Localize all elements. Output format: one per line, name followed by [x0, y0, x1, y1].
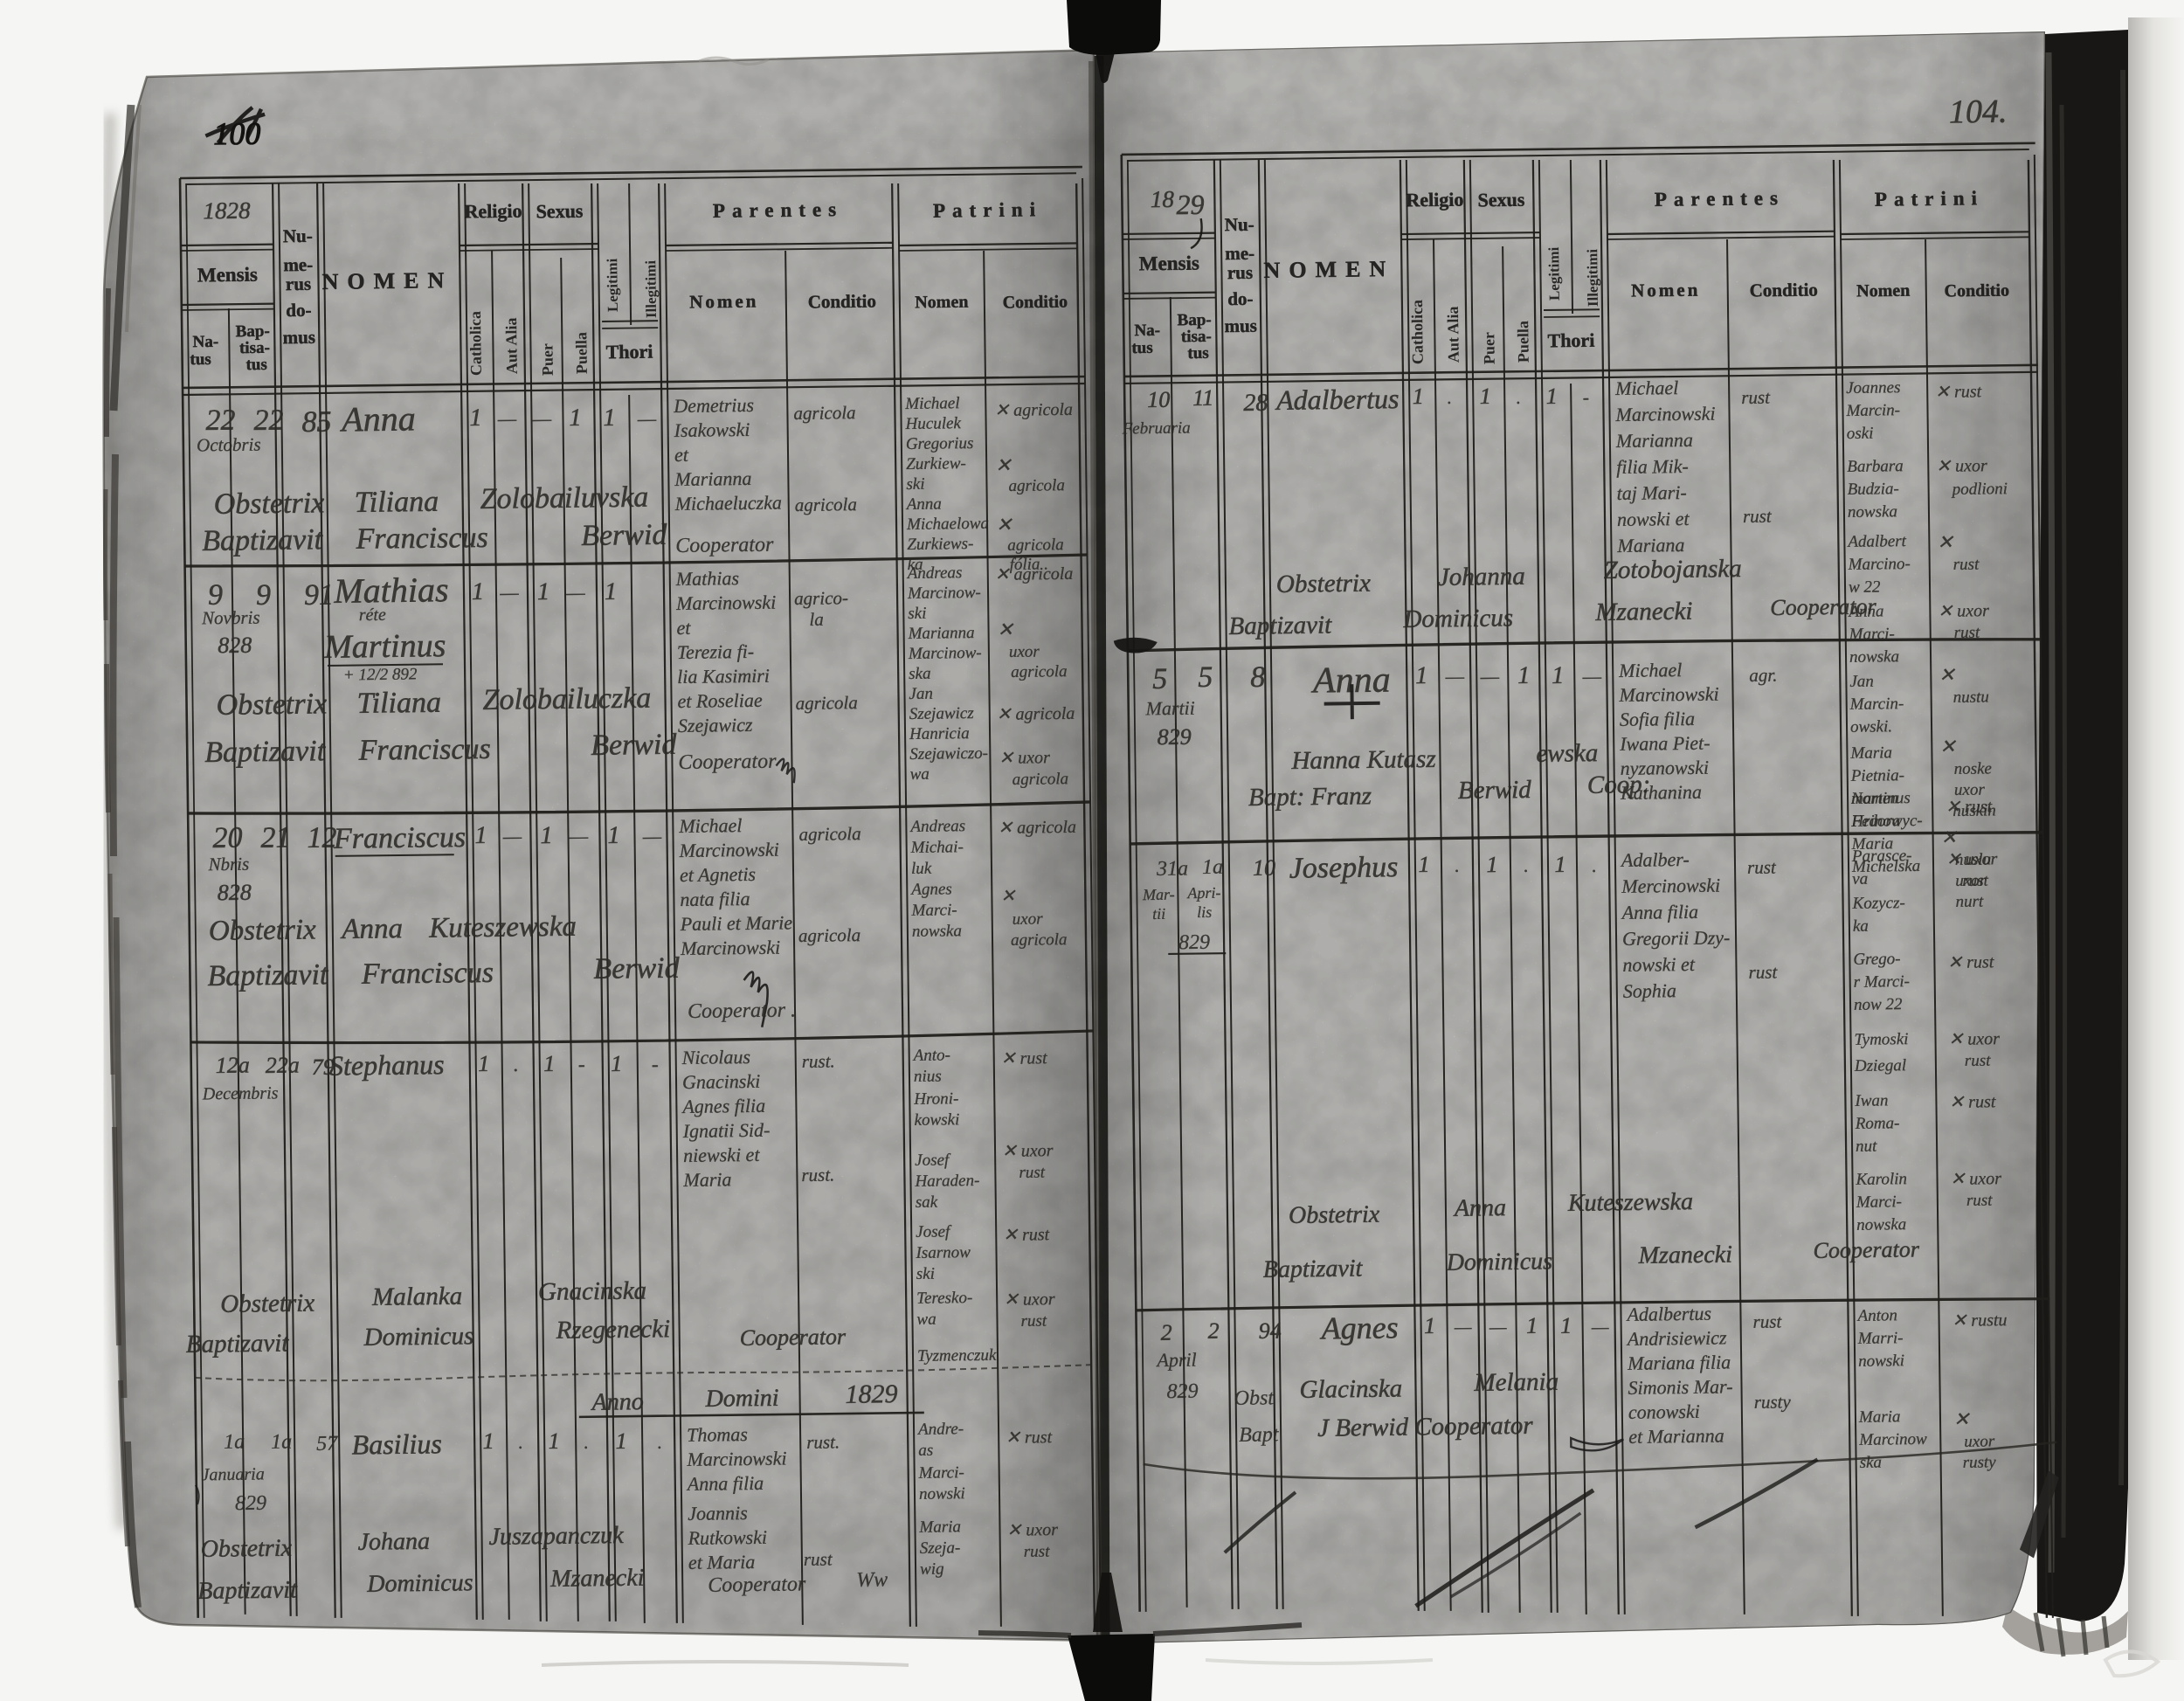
svg-text:22: 22: [253, 405, 283, 437]
svg-text:rust: rust: [1962, 872, 1989, 890]
svg-text:Obstetrix Tiliana: Obstetrix Tiliana: [216, 687, 441, 722]
svg-text:Obst: Obst: [1234, 1386, 1275, 1410]
svg-text:Sexus: Sexus: [536, 200, 584, 223]
svg-text:1: 1: [569, 405, 581, 432]
svg-text:—: —: [569, 826, 589, 848]
svg-text:—: —: [565, 582, 585, 605]
svg-text:Zurkiews-: Zurkiews-: [907, 535, 973, 554]
svg-text:uxor: uxor: [1013, 909, 1044, 928]
svg-text:1: 1: [543, 1051, 555, 1076]
svg-text:mus: mus: [1224, 315, 1257, 336]
svg-text:Martinus: Martinus: [323, 627, 446, 666]
svg-text:Basilius: Basilius: [351, 1428, 442, 1460]
svg-text:rust: rust: [1743, 506, 1773, 527]
svg-text:18: 18: [1151, 186, 1175, 212]
svg-text:Baptizavit Franciscus: Baptizavit Franciscus: [207, 957, 494, 992]
svg-text:Catholica: Catholica: [467, 311, 485, 376]
svg-text:✕: ✕: [996, 514, 1013, 536]
svg-text:tus: tus: [1131, 339, 1153, 357]
svg-text:April: April: [1155, 1349, 1197, 1372]
svg-text:2: 2: [1161, 1320, 1172, 1345]
svg-text:ska: ska: [1859, 1454, 1882, 1472]
svg-text:Berwid: Berwid: [591, 729, 678, 762]
svg-text:Marianna: Marianna: [674, 467, 751, 490]
svg-text:rus: rus: [286, 273, 311, 294]
svg-text:829: 829: [1166, 1380, 1198, 1403]
svg-text:Baptizavit Franciscus: Baptizavit Franciscus: [202, 522, 488, 557]
svg-text:1: 1: [1486, 852, 1497, 877]
svg-text:.: .: [514, 1054, 519, 1076]
svg-text:Andre-: Andre-: [916, 1420, 964, 1439]
svg-text:1: 1: [472, 578, 484, 605]
svg-text:21: 21: [260, 821, 290, 854]
svg-text:Berwid: Berwid: [593, 952, 681, 985]
svg-text:Bapt: Bapt: [1239, 1423, 1280, 1447]
svg-text:Gnacinski: Gnacinski: [682, 1070, 761, 1093]
svg-text:Haraden-: Haraden-: [914, 1172, 979, 1191]
svg-text:Anna: Anna: [905, 494, 942, 514]
svg-text:Zolobailuvska: Zolobailuvska: [480, 481, 648, 515]
svg-text:kowski: kowski: [914, 1110, 959, 1130]
svg-text:Cooperator: Cooperator: [740, 1324, 847, 1351]
svg-text:Hanna Kutasz: Hanna Kutasz: [1290, 745, 1436, 775]
svg-text:Michaelowa: Michaelowa: [906, 515, 989, 534]
svg-text:Thomas: Thomas: [687, 1423, 748, 1446]
svg-text:Marcinowski: Marcinowski: [1614, 403, 1715, 425]
svg-text:wa: wa: [910, 765, 930, 784]
svg-text:1: 1: [1552, 662, 1564, 689]
svg-text:Franciscus: Franciscus: [333, 821, 467, 855]
svg-text:5: 5: [1152, 663, 1167, 695]
svg-text:Baptizavit: Baptizavit: [1228, 611, 1332, 640]
svg-text:—: —: [1479, 666, 1499, 688]
svg-text:.: .: [1592, 854, 1597, 876]
svg-text:wig: wig: [920, 1560, 944, 1579]
svg-text:uxor: uxor: [1964, 1432, 1995, 1450]
svg-text:828: 828: [218, 633, 252, 658]
svg-text:94: 94: [1258, 1318, 1281, 1344]
svg-text:Adalbertus: Adalbertus: [1275, 383, 1400, 416]
svg-text:1: 1: [483, 1428, 494, 1454]
svg-text:Mensis: Mensis: [1139, 252, 1199, 275]
svg-text:Cooperator: Cooperator: [1770, 593, 1877, 620]
svg-text:12: 12: [307, 822, 336, 854]
svg-text:Tyzmenczuk: Tyzmenczuk: [917, 1346, 997, 1366]
svg-text:podlioni: podlioni: [1951, 480, 2008, 499]
svg-text:do-: do-: [286, 300, 311, 321]
svg-text:Gregorius: Gregorius: [906, 434, 974, 453]
svg-text:Coop:: Coop:: [1587, 771, 1651, 799]
svg-text:✕ agricola: ✕ agricola: [998, 818, 1076, 838]
svg-text:Zotobojanska: Zotobojanska: [1604, 555, 1742, 584]
svg-text:Marci-: Marci-: [1849, 625, 1895, 644]
svg-text:Mercinowski: Mercinowski: [1621, 875, 1720, 897]
svg-text:✕ uxor: ✕ uxor: [999, 748, 1050, 768]
svg-text:20: 20: [212, 822, 242, 854]
svg-text:Nu-: Nu-: [283, 225, 313, 246]
svg-text:✕: ✕: [1939, 664, 1955, 686]
svg-text:now 22: now 22: [1854, 995, 1903, 1014]
svg-text:-: -: [652, 1054, 659, 1076]
svg-text:✕ rust: ✕ rust: [1935, 382, 1982, 402]
svg-text:Puella: Puella: [1514, 321, 1532, 363]
svg-text:Baptizavit: Baptizavit: [186, 1329, 290, 1358]
svg-text:Bapt: Franz: Bapt: Franz: [1248, 782, 1372, 812]
svg-text:Adalbert: Adalbert: [1846, 532, 1906, 551]
svg-text:—: —: [499, 582, 519, 605]
svg-text:Ww: Ww: [856, 1568, 888, 1591]
svg-text:1: 1: [611, 1051, 622, 1076]
svg-text:22a: 22a: [266, 1052, 300, 1077]
svg-text:Legitimi: Legitimi: [1545, 246, 1563, 301]
svg-text:11: 11: [1192, 385, 1213, 411]
svg-text:rust: rust: [1965, 1052, 1992, 1070]
svg-text:rust: rust: [1752, 1310, 1782, 1331]
svg-text:Novbris: Novbris: [201, 607, 260, 629]
svg-text:noske: noske: [1954, 759, 1993, 778]
svg-text:✕ uxor: ✕ uxor: [1936, 456, 1987, 476]
svg-text:2: 2: [1207, 1318, 1219, 1344]
svg-text:NOMEN: NOMEN: [321, 267, 453, 294]
svg-text:nustu: nustu: [1952, 688, 1988, 707]
svg-text:lia Kasimiri: lia Kasimiri: [677, 665, 770, 688]
svg-text:ewska: ewska: [1536, 739, 1598, 768]
svg-text:Hroni-: Hroni-: [913, 1089, 958, 1109]
svg-text:do-: do-: [1227, 288, 1253, 309]
svg-text:Anno: Anno: [590, 1388, 643, 1416]
svg-text:Maria: Maria: [682, 1168, 731, 1191]
svg-text:me-: me-: [1225, 243, 1254, 264]
svg-text:—: —: [642, 826, 662, 848]
svg-text:✕ rust: ✕ rust: [1001, 1048, 1048, 1068]
svg-text:réte: réte: [359, 605, 386, 625]
svg-text:1: 1: [607, 822, 619, 849]
svg-text:Isarnow: Isarnow: [915, 1243, 971, 1262]
svg-text:Mariana: Mariana: [1616, 534, 1684, 557]
svg-text:me-: me-: [283, 254, 313, 275]
svg-text:Religio: Religio: [464, 200, 522, 223]
svg-text:-: -: [1582, 386, 1589, 408]
svg-text:Marcin-: Marcin-: [1845, 401, 1900, 420]
svg-text:12a: 12a: [216, 1052, 250, 1077]
svg-text:Mensis: Mensis: [197, 264, 258, 287]
svg-text:Johanna: Johanna: [1438, 563, 1525, 591]
svg-text:J Berwid Cooperator: J Berwid Cooperator: [1317, 1412, 1534, 1442]
svg-text:la: la: [809, 609, 824, 630]
svg-text:Februaria: Februaria: [1122, 418, 1191, 438]
svg-text:nut: nut: [1856, 1137, 1877, 1156]
svg-text:10: 10: [1147, 387, 1170, 412]
svg-text:Nomen: Nomen: [915, 293, 968, 313]
svg-text:Illegitimi: Illegitimi: [642, 260, 660, 319]
svg-text:Nu-: Nu-: [1225, 214, 1254, 235]
svg-text:Grego-: Grego-: [1853, 950, 1900, 969]
svg-text:rus: rus: [1227, 262, 1253, 283]
svg-text:agr.: agr.: [1749, 665, 1777, 686]
svg-text:28: 28: [1243, 390, 1268, 417]
svg-text:Huculek: Huculek: [904, 414, 961, 433]
svg-text:Jan: Jan: [1849, 673, 1874, 691]
svg-text:1a: 1a: [1202, 856, 1223, 879]
svg-text:Apri-: Apri-: [1186, 884, 1220, 902]
svg-text:nowska: nowska: [1848, 502, 1897, 522]
svg-text:rust: rust: [1954, 624, 1981, 642]
svg-text:✕ uxor: ✕ uxor: [1950, 1169, 2001, 1189]
svg-text:Marcinow: Marcinow: [1858, 1430, 1927, 1449]
svg-text:et Agnetis: et Agnetis: [680, 863, 756, 886]
svg-text:Marcinowski: Marcinowski: [1618, 683, 1718, 706]
svg-text:Joannis: Joannis: [688, 1502, 748, 1525]
svg-text:Agnes: Agnes: [1319, 1310, 1398, 1345]
svg-text:Mariana filia: Mariana filia: [1627, 1351, 1731, 1373]
svg-text:Adalber-: Adalber-: [1620, 848, 1690, 871]
svg-text:Marcino-: Marcino-: [1848, 555, 1911, 574]
svg-text:829: 829: [1178, 931, 1210, 954]
svg-text:Puer: Puer: [1480, 332, 1497, 364]
svg-text:Kuteszewska: Kuteszewska: [1567, 1188, 1693, 1217]
svg-text:nowski: nowski: [1858, 1352, 1904, 1371]
svg-text:31a: 31a: [1156, 857, 1188, 880]
svg-text:Michael: Michael: [1618, 659, 1682, 681]
svg-text:.: .: [1455, 854, 1460, 876]
svg-text:Melania: Melania: [1473, 1368, 1559, 1397]
svg-text:Josephus: Josephus: [1289, 851, 1398, 885]
svg-text:Anna: Anna: [339, 398, 416, 439]
svg-text:1: 1: [537, 578, 549, 605]
svg-text:✕ rust: ✕ rust: [1006, 1428, 1053, 1448]
svg-text:Cooperator: Cooperator: [678, 750, 777, 774]
svg-text:1828: 1828: [203, 197, 251, 225]
svg-text:Cooperator: Cooperator: [675, 534, 774, 557]
svg-text:Aut Alia: Aut Alia: [502, 317, 521, 374]
svg-text:✕: ✕: [1940, 826, 1957, 848]
svg-text:rust.: rust.: [806, 1431, 840, 1452]
svg-text:—: —: [532, 408, 552, 431]
svg-text:Na-: Na-: [192, 333, 218, 351]
svg-text:agricola: agricola: [1013, 770, 1069, 789]
svg-text:Mar-: Mar-: [1142, 886, 1175, 903]
svg-text:.: .: [1447, 386, 1452, 408]
svg-text:Marci-: Marci-: [918, 1463, 964, 1483]
svg-text:Berwid: Berwid: [581, 519, 668, 552]
svg-text:.: .: [1516, 386, 1521, 408]
svg-text:Patrini: Patrini: [933, 198, 1042, 222]
svg-text:Conditio: Conditio: [1002, 293, 1068, 313]
svg-text:Marcinow-: Marcinow-: [908, 644, 982, 663]
svg-text:Nomen: Nomen: [689, 290, 758, 312]
svg-text:Sophia: Sophia: [1623, 979, 1676, 1002]
svg-text:agricola: agricola: [1011, 662, 1068, 681]
svg-text:Parentes: Parentes: [1655, 187, 1785, 211]
svg-text:Dziegal: Dziegal: [1854, 1056, 1906, 1075]
svg-text:Conditio: Conditio: [1750, 279, 1818, 301]
svg-text:Anna filia: Anna filia: [686, 1472, 764, 1495]
svg-text:mus: mus: [282, 327, 315, 348]
svg-text:829: 829: [1157, 724, 1191, 750]
svg-text:agricola: agricola: [798, 823, 860, 845]
svg-text:1: 1: [469, 405, 481, 432]
svg-text:1a: 1a: [224, 1431, 245, 1454]
svg-text:et Marianna: et Marianna: [1628, 1425, 1724, 1448]
svg-text:Puer: Puer: [538, 343, 556, 376]
svg-text:1: 1: [540, 822, 552, 849]
svg-text:-: -: [578, 1054, 585, 1076]
svg-text:et: et: [674, 444, 689, 466]
svg-text:91: 91: [304, 579, 334, 612]
svg-text:ka: ka: [1853, 917, 1869, 936]
svg-text:Rutkowski: Rutkowski: [687, 1526, 767, 1549]
svg-text:Maria: Maria: [918, 1518, 961, 1537]
svg-text:as: as: [918, 1442, 933, 1460]
svg-text:828: 828: [218, 880, 252, 905]
svg-text:Andrisiewicz: Andrisiewicz: [1626, 1326, 1727, 1349]
svg-text:Szejawiczo-: Szejawiczo-: [909, 744, 988, 764]
svg-text:Obstetrix: Obstetrix: [1289, 1201, 1380, 1229]
svg-text:—: —: [1489, 1316, 1507, 1338]
svg-text:Joannes: Joannes: [1846, 378, 1901, 398]
svg-text:luk: luk: [911, 860, 932, 878]
svg-text:nowska: nowska: [1856, 1215, 1906, 1234]
svg-text:✕: ✕: [1937, 531, 1953, 553]
svg-text:Nicolaus: Nicolaus: [681, 1046, 751, 1068]
svg-text:agricola: agricola: [798, 924, 860, 946]
svg-text:✕: ✕: [995, 454, 1012, 476]
svg-text:Januaria: Januaria: [201, 1464, 264, 1484]
svg-text:Conditio: Conditio: [1944, 280, 2009, 301]
svg-text:Patrini: Patrini: [1875, 187, 1984, 211]
svg-text:rust: rust: [1748, 961, 1778, 982]
svg-text:rusty: rusty: [1754, 1391, 1792, 1413]
svg-text:Terezia fi-: Terezia fi-: [677, 640, 755, 663]
svg-text:Andreas: Andreas: [906, 564, 963, 583]
svg-text:Iwan: Iwan: [1854, 1091, 1888, 1110]
svg-text:1: 1: [478, 1051, 489, 1076]
svg-text:—: —: [502, 826, 522, 848]
svg-text:✕: ✕: [1939, 736, 1956, 757]
svg-text:57: 57: [316, 1433, 338, 1456]
svg-text:Baptizavit: Baptizavit: [1263, 1255, 1364, 1283]
svg-text:conowski: conowski: [1628, 1400, 1700, 1423]
svg-text:Szejawicz: Szejawicz: [909, 704, 975, 723]
svg-text:✕ uxor: ✕ uxor: [1938, 601, 1989, 621]
svg-text:—: —: [497, 408, 517, 431]
svg-text:Mathias: Mathias: [675, 567, 739, 590]
svg-text:Juszapanczuk: Juszapanczuk: [488, 1522, 624, 1551]
svg-text:Religio: Religio: [1406, 189, 1463, 211]
svg-text:829: 829: [235, 1492, 266, 1515]
svg-text:oski: oski: [1847, 425, 1874, 443]
svg-text:rust: rust: [1024, 1543, 1051, 1561]
svg-text:Puella: Puella: [572, 332, 591, 374]
svg-text:1: 1: [605, 578, 617, 605]
svg-text:Baptizavit: Baptizavit: [197, 1576, 298, 1604]
svg-text:Maria: Maria: [1849, 743, 1892, 763]
svg-text:1: 1: [1517, 662, 1530, 689]
svg-text:ski: ski: [908, 605, 926, 623]
svg-text:et Maria: et Maria: [688, 1551, 756, 1573]
svg-text:agricola: agricola: [1008, 476, 1065, 495]
svg-text:Mzanecki: Mzanecki: [1637, 1241, 1732, 1269]
svg-text:Karolin: Karolin: [1855, 1170, 1907, 1189]
svg-text:Marcinowski: Marcinowski: [680, 937, 780, 959]
svg-text:Decembris: Decembris: [202, 1083, 279, 1103]
svg-text:Gnacinska: Gnacinska: [538, 1276, 646, 1306]
svg-text:5: 5: [1198, 661, 1213, 694]
svg-text:✕ rust: ✕ rust: [1003, 1225, 1050, 1245]
svg-text:Stephanus: Stephanus: [329, 1048, 445, 1082]
svg-text:1: 1: [1418, 852, 1429, 877]
svg-text:Anton: Anton: [1856, 1306, 1897, 1325]
svg-text:Parasce-: Parasce-: [1851, 847, 1912, 866]
svg-text:ski: ski: [916, 1265, 935, 1283]
svg-text:rust.: rust.: [801, 1164, 834, 1185]
svg-text:tus: tus: [245, 356, 267, 374]
svg-text:Marcinowski: Marcinowski: [679, 839, 779, 861]
svg-text:Hanricia: Hanricia: [909, 724, 970, 743]
svg-text:Na-: Na-: [1134, 322, 1160, 340]
svg-text:✕ rustu: ✕ rustu: [1952, 1310, 2007, 1331]
svg-text:rust: rust: [1019, 1164, 1046, 1182]
svg-text:agricola: agricola: [793, 402, 855, 424]
svg-text:wa: wa: [916, 1310, 936, 1329]
svg-text:nowski: nowski: [919, 1484, 965, 1504]
svg-text:8: 8: [1250, 661, 1265, 694]
svg-text:Marcin-: Marcin-: [1849, 695, 1904, 714]
svg-text:✕: ✕: [1953, 1408, 1970, 1430]
svg-text:1: 1: [1526, 1313, 1538, 1338]
svg-text:niewski et: niewski et: [683, 1144, 761, 1166]
svg-text:agrico-: agrico-: [794, 587, 848, 609]
svg-text:Szeja-: Szeja-: [920, 1539, 961, 1558]
svg-text:1: 1: [1424, 1313, 1435, 1338]
svg-text:✕ uxor: ✕ uxor: [1948, 1029, 2000, 1049]
svg-text:Zolobailuczka: Zolobailuczka: [482, 682, 651, 716]
svg-text:10: 10: [1253, 855, 1275, 881]
svg-text:1: 1: [1554, 852, 1565, 877]
svg-text:—: —: [1581, 666, 1601, 688]
svg-text:✕ uxor: ✕ uxor: [1946, 849, 1998, 869]
svg-text:Obstetrix: Obstetrix: [220, 1290, 314, 1318]
svg-text:Simonis Mar-: Simonis Mar-: [1628, 1375, 1732, 1399]
svg-text:uxor: uxor: [1009, 642, 1040, 660]
svg-text:agricola: agricola: [1007, 536, 1064, 555]
svg-text:Michael: Michael: [1614, 377, 1678, 399]
svg-text:Obstetrix: Obstetrix: [1276, 570, 1371, 598]
svg-text:Zurkiew-: Zurkiew-: [906, 454, 966, 474]
svg-text:nowska: nowska: [912, 922, 962, 941]
svg-text:1: 1: [603, 405, 615, 432]
svg-text:Berwid: Berwid: [1458, 776, 1532, 805]
svg-text:✕ agricola: ✕ agricola: [997, 704, 1075, 724]
svg-text:Szejawicz: Szejawicz: [678, 714, 753, 736]
svg-text:rust: rust: [1741, 387, 1771, 408]
svg-text:—: —: [1444, 666, 1464, 688]
svg-text:Ignatii Sid-: Ignatii Sid-: [682, 1119, 771, 1142]
svg-text:Dominicus: Dominicus: [366, 1569, 473, 1598]
svg-text:Marci-: Marci-: [910, 901, 957, 920]
svg-text:Malanka: Malanka: [371, 1283, 462, 1311]
svg-text:85: 85: [301, 406, 331, 439]
svg-text:✕ uxor: ✕ uxor: [1004, 1290, 1055, 1310]
svg-text:—: —: [637, 408, 657, 431]
svg-text:Fedora: Fedora: [1850, 812, 1900, 831]
svg-text:Marcinow-: Marcinow-: [907, 584, 981, 603]
svg-text:Obstetrix Anna Kuteszewska: Obstetrix Anna Kuteszewska: [209, 911, 577, 947]
svg-text:Aut Alia: Aut Alia: [1444, 306, 1462, 363]
svg-text:.: .: [584, 1431, 589, 1453]
svg-text:Pietnia-: Pietnia-: [1850, 766, 1904, 785]
svg-text:r Marci-: r Marci-: [1854, 972, 1910, 992]
